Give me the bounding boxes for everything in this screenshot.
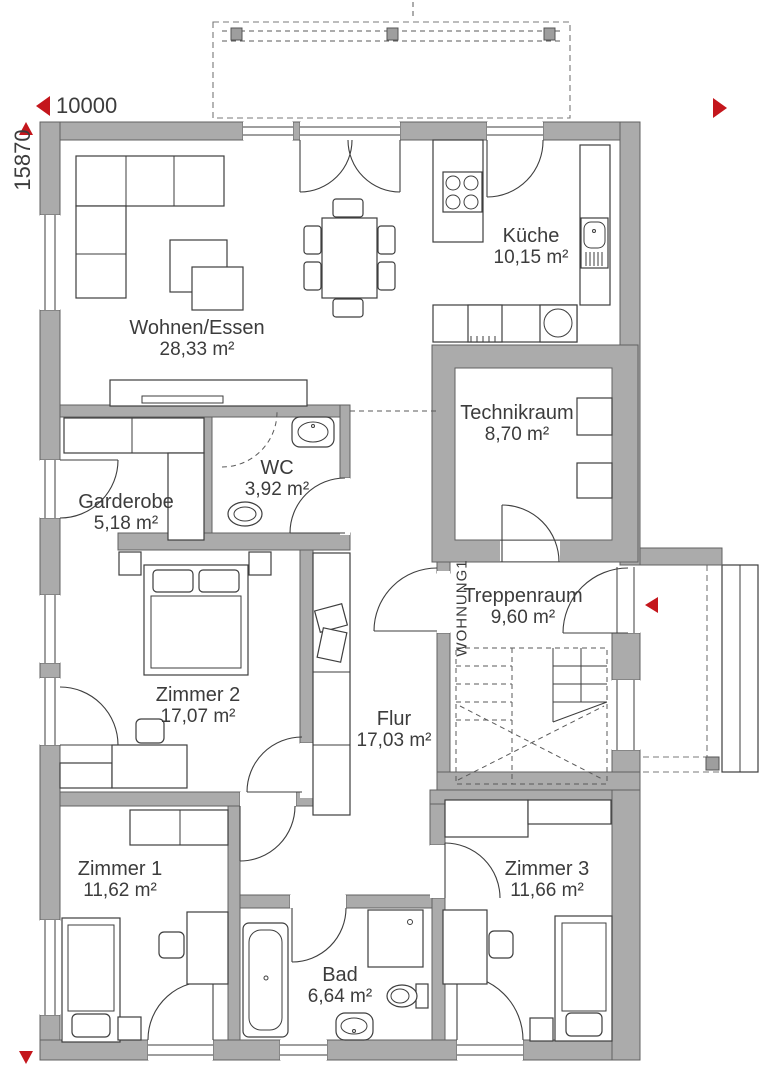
width-arrow-icon xyxy=(36,96,50,116)
direction-arrow-right-icon xyxy=(713,98,727,118)
desk-zimmer2 xyxy=(60,719,187,788)
room-area: 28,33 m² xyxy=(129,339,264,361)
room-name: Garderobe xyxy=(78,491,174,513)
bad-sink xyxy=(336,1013,373,1040)
door-zimmer2-terrace xyxy=(60,687,118,745)
room-name: Zimmer 1 xyxy=(78,858,162,880)
entrance-porch xyxy=(633,548,758,772)
stove xyxy=(443,172,482,212)
room-area: 17,03 m² xyxy=(357,730,432,752)
room-area: 6,64 m² xyxy=(308,986,372,1008)
wc-toilet xyxy=(228,502,262,526)
room-label-bad: Bad 6,64 m² xyxy=(308,964,372,1008)
porch-post xyxy=(706,757,719,770)
room-label-technikraum: Technikraum 8,70 m² xyxy=(460,402,573,446)
room-name: WC xyxy=(245,457,309,479)
staircase xyxy=(456,648,607,784)
door-apartment xyxy=(374,568,437,631)
technik-units xyxy=(577,398,612,498)
dimension-width-label: 10000 xyxy=(56,93,117,119)
door-zimmer1 xyxy=(240,806,295,861)
entrance-arrow-icon xyxy=(645,597,658,613)
room-label-wohnen-essen: Wohnen/Essen 28,33 m² xyxy=(129,317,264,361)
door-zimmer2 xyxy=(247,737,302,792)
room-name: Zimmer 3 xyxy=(505,858,589,880)
room-label-zimmer2: Zimmer 2 17,07 m² xyxy=(156,684,240,728)
room-name: Technikraum xyxy=(460,402,573,424)
dining-table-set xyxy=(304,199,395,317)
door-french-living xyxy=(300,140,400,192)
door-bad xyxy=(292,908,346,962)
room-area: 9,60 m² xyxy=(463,607,582,629)
kitchen-sink xyxy=(581,218,608,268)
desk-zimmer3 xyxy=(443,910,513,984)
height-arrow-bottom-icon xyxy=(19,1051,33,1064)
bed-single-zimmer3 xyxy=(530,916,612,1041)
room-area: 8,70 m² xyxy=(460,424,573,446)
room-label-treppenraum: Treppenraum 9,60 m² xyxy=(463,585,582,629)
sideboard xyxy=(110,380,307,406)
wardrobe-zimmer1 xyxy=(130,810,228,845)
door-kitchen-terrace xyxy=(487,140,543,197)
room-area: 10,15 m² xyxy=(494,247,569,269)
room-label-zimmer3: Zimmer 3 11,66 m² xyxy=(505,858,589,902)
room-label-kueche: Küche 10,15 m² xyxy=(494,225,569,269)
floor-plan-drawing xyxy=(0,0,772,1080)
roof-overhang-top xyxy=(213,2,570,118)
floor-plan: 10000 15870 WOHNUNG1 Wohnen/Essen 28,33 … xyxy=(0,0,772,1080)
room-label-wc: WC 3,92 m² xyxy=(245,457,309,501)
bad-toilet xyxy=(387,984,428,1008)
room-name: Küche xyxy=(494,225,569,247)
room-label-garderobe: Garderobe 5,18 m² xyxy=(78,491,174,535)
door-zimmer3 xyxy=(445,843,500,898)
shower xyxy=(368,910,423,967)
room-area: 17,07 m² xyxy=(156,706,240,728)
room-name: Bad xyxy=(308,964,372,986)
room-name: Treppenraum xyxy=(463,585,582,607)
door-zimmer1-terrace xyxy=(148,982,213,1040)
room-label-flur: Flur 17,03 m² xyxy=(357,708,432,752)
room-label-zimmer1: Zimmer 1 11,62 m² xyxy=(78,858,162,902)
room-area: 11,62 m² xyxy=(78,880,162,902)
dishwasher xyxy=(468,305,502,342)
room-name: Flur xyxy=(357,708,432,730)
door-zimmer3-terrace xyxy=(457,975,523,1040)
bed-single-zimmer1 xyxy=(62,918,120,1042)
room-area: 3,92 m² xyxy=(245,479,309,501)
bathtub xyxy=(243,923,288,1037)
roof-post xyxy=(387,28,398,40)
roof-post xyxy=(231,28,242,40)
wc-sink xyxy=(292,417,334,447)
kitchen-basin-round xyxy=(540,305,577,342)
room-name: Zimmer 2 xyxy=(156,684,240,706)
room-name: Wohnen/Essen xyxy=(129,317,264,339)
dimension-height-label: 15870 xyxy=(10,129,36,190)
room-area: 5,18 m² xyxy=(78,513,174,535)
bed-double xyxy=(119,552,271,675)
wardrobe-zimmer3 xyxy=(445,800,611,837)
desk-zimmer1 xyxy=(118,912,228,1040)
room-area: 11,66 m² xyxy=(505,880,589,902)
roof-post xyxy=(544,28,555,40)
hall-cabinet xyxy=(313,553,350,815)
coffee-tables xyxy=(170,240,243,310)
